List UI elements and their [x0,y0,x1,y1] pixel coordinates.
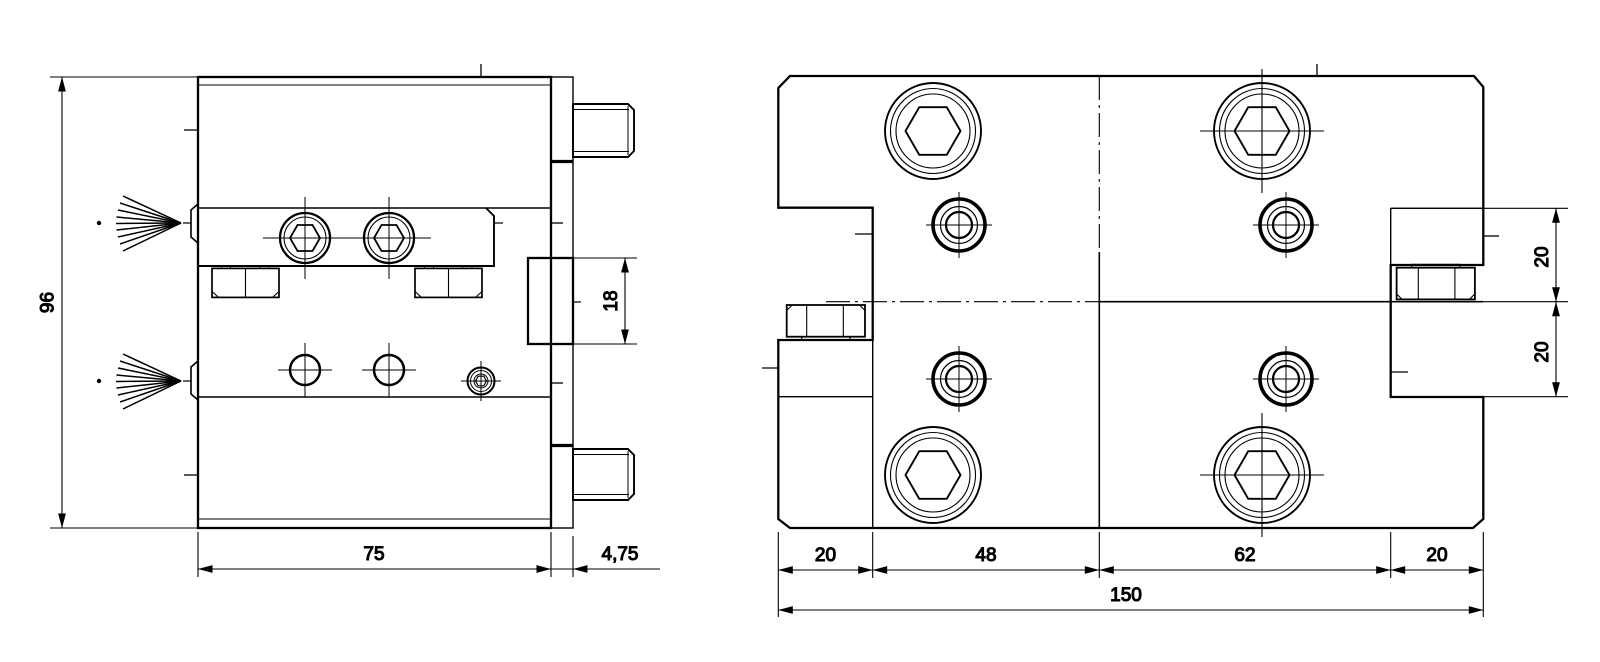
dim-label-150: 150 [1110,585,1142,606]
dim-label-4-75: 4,75 [602,544,639,565]
exhaust-spray-bottom-icon [97,354,181,409]
front-body-outline [198,77,551,528]
port-screw-top-left [926,192,992,258]
port-screw-top-right [1253,192,1319,258]
dimension-width-75: 75 4,75 [198,532,660,577]
sensor-slot-block [528,258,581,344]
center-lines [826,76,1483,528]
dim-label-75: 75 [363,544,384,565]
plan-internal-edges [778,208,1483,528]
dim-label-20-right: 20 [1426,545,1447,566]
port-boss-top [183,204,198,243]
reference-ticks-front [184,64,563,475]
dim-label-96: 96 [38,292,59,313]
technical-drawing: 96 75 4,75 18 [0,0,1600,662]
hex-socket-bolt-bottom-right [1200,413,1324,537]
dim-label-20-lower: 20 [1532,341,1553,362]
dim-label-20-upper: 20 [1532,246,1553,267]
port-boss-bottom [183,361,198,400]
threaded-stud-bottom [573,449,634,500]
dim-label-20-left: 20 [815,545,836,566]
clamp-band [198,208,503,266]
through-hole-left [278,343,332,397]
dimension-height-96: 96 [38,77,199,528]
dim-label-62: 62 [1234,545,1255,566]
dim-label-48: 48 [975,545,996,566]
through-hole-right [362,343,416,397]
plan-view: 20 48 62 20 150 20 20 [762,64,1568,617]
hex-nut-left-side [787,305,865,340]
small-socket-screw [461,361,501,401]
hex-socket-bolt-bottom-left [885,427,981,523]
exhaust-spray-top-icon [97,196,181,251]
dimension-slot-18: 18 [573,258,637,344]
drawing-canvas: 96 75 4,75 18 [0,0,1600,662]
hex-socket-bolt-top-left [885,83,981,179]
dim-label-18: 18 [601,290,622,311]
port-screw-bottom-left [926,346,992,412]
hex-nut-front-left [212,266,279,298]
port-screw-bottom-right [1253,346,1319,412]
hex-socket-bolt-top-right [1200,69,1324,193]
threaded-stud-top [573,104,634,157]
hex-nut-right-side [1397,264,1475,299]
end-plate [551,77,573,528]
hex-nut-front-right [415,266,482,298]
front-view: 96 75 4,75 18 [38,64,661,577]
dimension-overall-150: 150 [778,585,1483,614]
